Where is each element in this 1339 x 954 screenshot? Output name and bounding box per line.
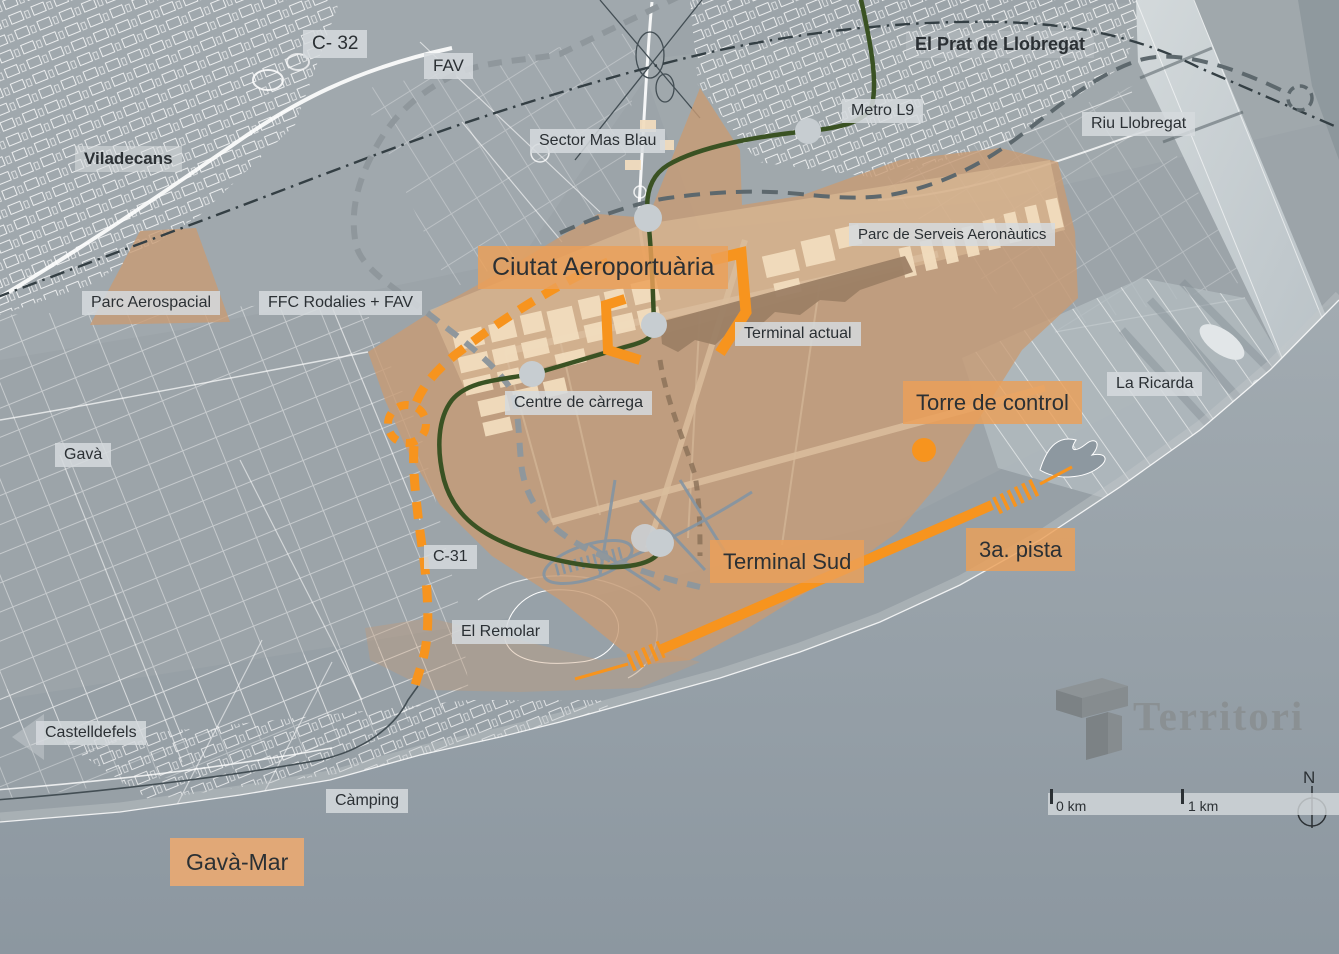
label-gava-mar: Gavà-Mar — [170, 838, 304, 886]
label-c32: C- 32 — [303, 30, 367, 58]
label-centre-carrega: Centre de càrrega — [505, 391, 652, 415]
label-camping: Càmping — [326, 789, 408, 813]
label-ffc-rodalies: FFC Rodalies + FAV — [259, 291, 422, 315]
scale-label-one: 1 km — [1188, 798, 1218, 814]
label-parc-aerospacial: Parc Aerospacial — [82, 291, 220, 315]
label-el-prat: El Prat de Llobregat — [906, 31, 1094, 58]
label-tercera-pista: 3a. pista — [966, 528, 1075, 571]
label-la-ricarda: La Ricarda — [1107, 372, 1202, 396]
scale-label-zero: 0 km — [1056, 798, 1086, 814]
control-tower-dot — [912, 438, 936, 462]
label-castelldefels: Castelldefels — [36, 721, 146, 745]
label-torre-control: Torre de control — [903, 381, 1082, 424]
scale-bar: 0 km 1 km — [1048, 793, 1339, 815]
label-ciutat-aeroportuaria: Ciutat Aeroportuària — [478, 246, 728, 289]
label-gava: Gavà — [55, 443, 111, 467]
map-viewport: C- 32 FAV Viladecans El Prat de Llobrega… — [0, 0, 1339, 954]
label-terminal-sud: Terminal Sud — [710, 540, 864, 583]
label-riu-llobregat: Riu Llobregat — [1082, 112, 1195, 136]
label-sector-mas-blau: Sector Mas Blau — [530, 129, 665, 153]
north-label: N — [1303, 768, 1315, 788]
territori-logo-text: Territori — [1133, 692, 1304, 740]
label-terminal-actual: Terminal actual — [735, 322, 861, 346]
label-viladecans: Viladecans — [75, 146, 182, 172]
label-metro-l9: Metro L9 — [842, 99, 923, 123]
scale-tick-one — [1181, 789, 1184, 804]
scale-tick-zero — [1050, 789, 1053, 804]
label-fav: FAV — [424, 53, 473, 79]
label-el-remolar: El Remolar — [452, 620, 549, 644]
label-c31: C-31 — [424, 545, 477, 569]
label-parc-serveis: Parc de Serveis Aeronàutics — [849, 223, 1055, 246]
